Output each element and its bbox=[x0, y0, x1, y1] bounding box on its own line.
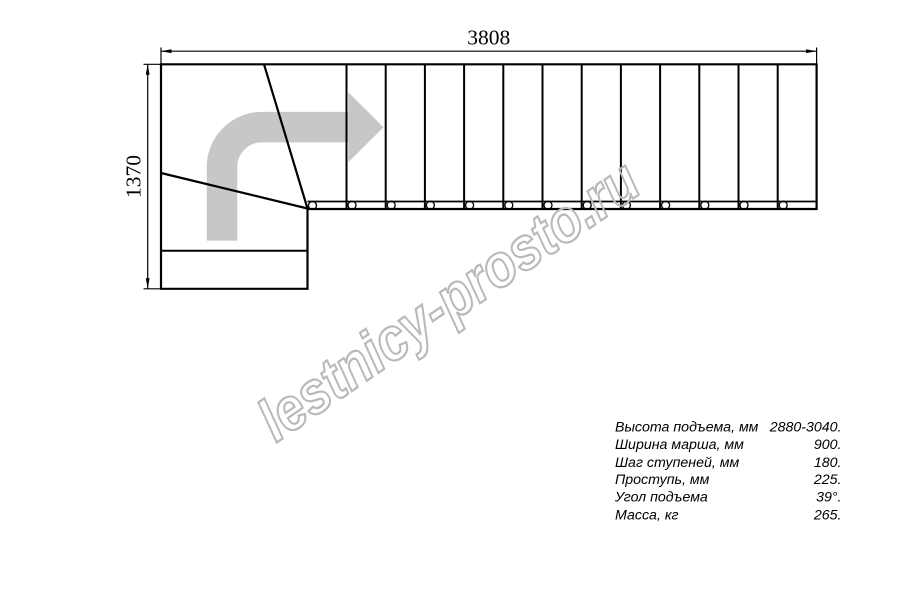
svg-text:265.: 265. bbox=[813, 507, 842, 523]
svg-text:39°.: 39°. bbox=[816, 490, 841, 506]
svg-text:Ширина марша, мм: Ширина марша, мм bbox=[615, 437, 744, 453]
svg-text:Масса, кг: Масса, кг bbox=[615, 507, 679, 523]
svg-text:Шаг ступеней, мм: Шаг ступеней, мм bbox=[615, 455, 739, 471]
svg-text:Высота подъема, мм: Высота подъема, мм bbox=[615, 419, 759, 435]
svg-text:225.: 225. bbox=[813, 472, 842, 488]
svg-text:2880-3040.: 2880-3040. bbox=[769, 419, 842, 435]
svg-text:1370: 1370 bbox=[122, 155, 146, 198]
svg-text:3808: 3808 bbox=[467, 26, 510, 50]
svg-text:180.: 180. bbox=[814, 455, 842, 471]
svg-text:900.: 900. bbox=[814, 437, 842, 453]
svg-text:Проступь, мм: Проступь, мм bbox=[615, 472, 710, 488]
svg-text:Угол подъема: Угол подъема bbox=[614, 490, 708, 506]
